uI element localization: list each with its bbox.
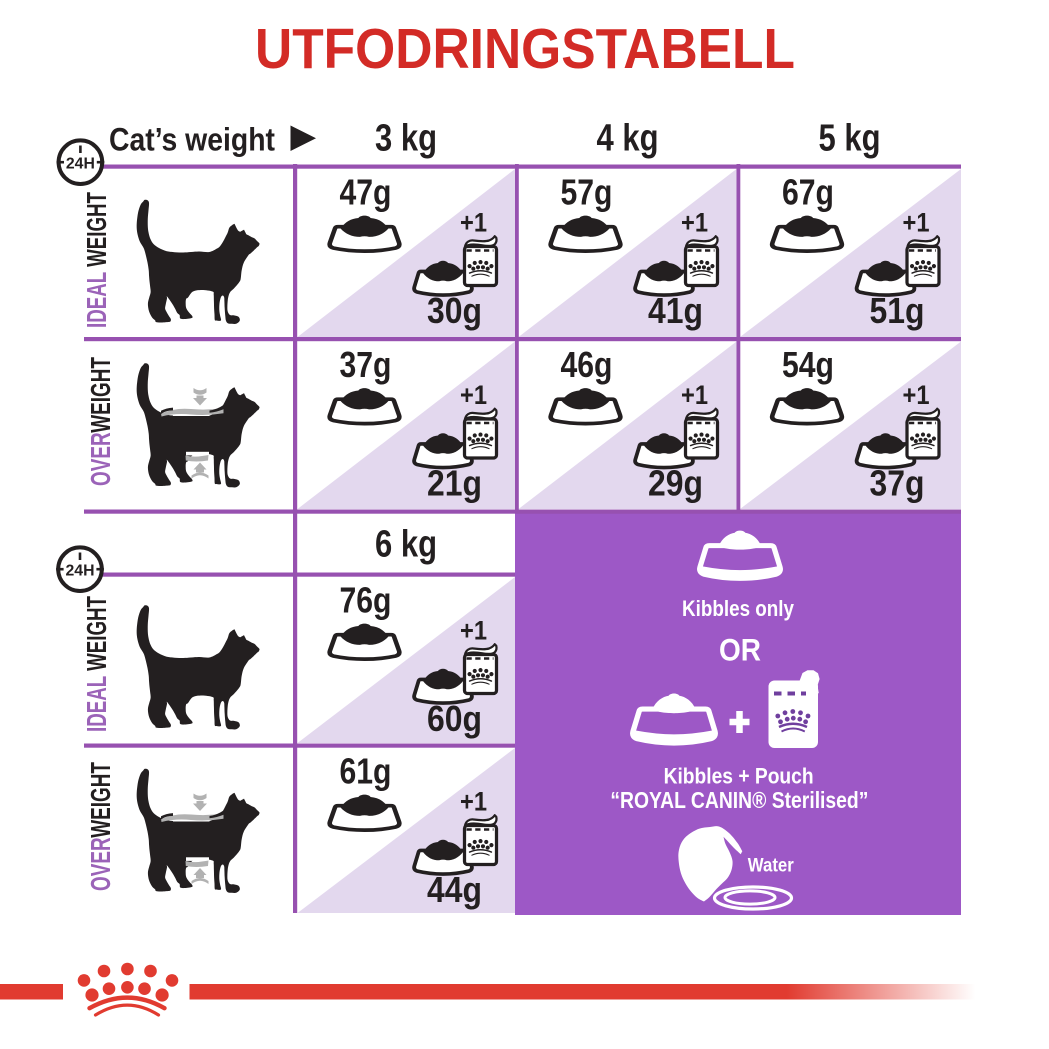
svg-text:60g: 60g xyxy=(427,698,482,739)
svg-text:54g: 54g xyxy=(782,344,834,385)
svg-text:51g: 51g xyxy=(870,290,925,331)
svg-text:+1: +1 xyxy=(681,208,708,238)
svg-text:41g: 41g xyxy=(648,290,703,331)
svg-text:29g: 29g xyxy=(648,463,703,504)
svg-text:57g: 57g xyxy=(561,172,613,213)
svg-text:UTFODRINGSTABELL: UTFODRINGSTABELL xyxy=(255,17,795,81)
svg-text:+1: +1 xyxy=(903,208,930,238)
svg-text:47g: 47g xyxy=(340,172,392,213)
svg-text:+1: +1 xyxy=(460,616,487,646)
svg-text:+1: +1 xyxy=(903,380,930,410)
svg-text:67g: 67g xyxy=(782,172,834,213)
svg-text:Kibbles only: Kibbles only xyxy=(682,596,795,621)
svg-text:OVERWEIGHT: OVERWEIGHT xyxy=(85,762,116,891)
svg-text:37g: 37g xyxy=(870,463,925,504)
svg-text:44g: 44g xyxy=(427,869,482,910)
svg-text:OVERWEIGHT: OVERWEIGHT xyxy=(85,357,116,486)
svg-text:Kibbles + Pouch: Kibbles + Pouch xyxy=(664,764,814,789)
svg-text:4 kg: 4 kg xyxy=(597,118,659,160)
svg-text:Cat’s weight: Cat’s weight xyxy=(109,122,275,158)
svg-text:24H: 24H xyxy=(66,562,95,579)
svg-text:+1: +1 xyxy=(460,208,487,238)
svg-text:Water: Water xyxy=(748,856,795,877)
svg-text:3 kg: 3 kg xyxy=(375,118,437,160)
svg-text:IDEAL WEIGHT: IDEAL WEIGHT xyxy=(81,596,112,732)
svg-text:+1: +1 xyxy=(460,787,487,817)
svg-text:61g: 61g xyxy=(340,751,392,792)
svg-text:30g: 30g xyxy=(427,290,482,331)
svg-text:21g: 21g xyxy=(427,463,482,504)
svg-text:46g: 46g xyxy=(561,344,613,385)
svg-text:24H: 24H xyxy=(66,155,95,172)
svg-text:+1: +1 xyxy=(681,380,708,410)
svg-text:76g: 76g xyxy=(340,580,392,621)
svg-text:IDEAL WEIGHT: IDEAL WEIGHT xyxy=(81,192,112,328)
svg-text:6 kg: 6 kg xyxy=(375,524,437,566)
svg-text:+1: +1 xyxy=(460,380,487,410)
svg-text:“ROYAL CANIN® Sterilised”: “ROYAL CANIN® Sterilised” xyxy=(610,787,868,813)
svg-text:37g: 37g xyxy=(340,344,392,385)
svg-text:OR: OR xyxy=(719,632,761,668)
svg-text:5 kg: 5 kg xyxy=(819,118,881,160)
